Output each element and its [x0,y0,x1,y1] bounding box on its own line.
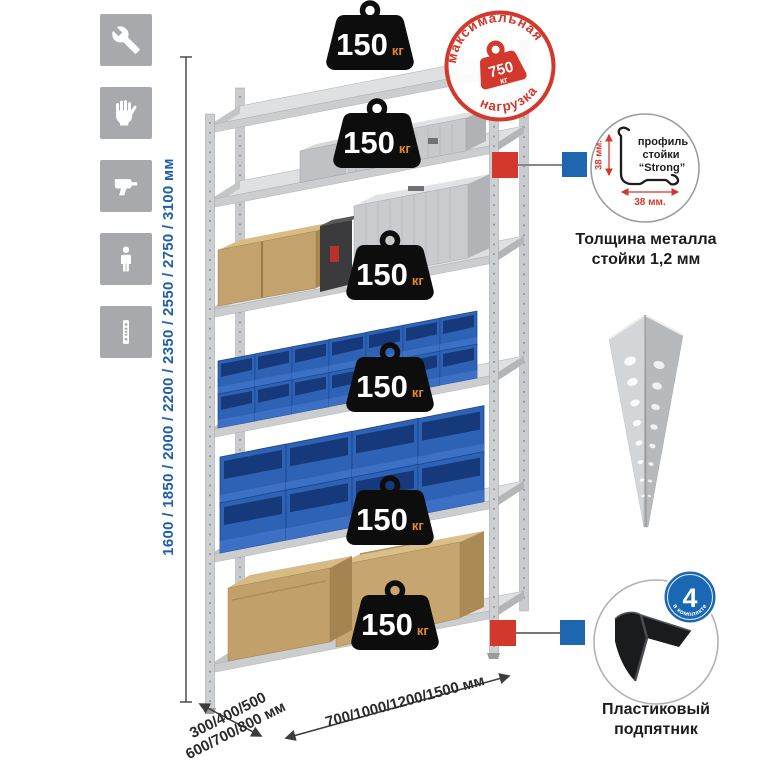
profile-caption: Толщина металла стойки 1,2 мм [565,230,727,270]
height-dimension-label: 1600 / 1850 / 2000 / 2200 / 2350 / 2550 … [159,72,179,642]
shelf-weight-badge-3: 150кг [317,230,463,302]
profile-caption-line2: стойки 1,2 мм [565,250,727,270]
weight-unit: кг [412,385,424,400]
profile-title-3: “Strong” [639,162,685,174]
icon-tile-wrench [100,14,152,66]
badge-count: 4 [682,583,697,613]
perforated-post-icon [111,317,141,347]
profile-caption-line1: Толщина металла [565,230,727,250]
profile-title-1: профиль [638,136,688,148]
person-icon [111,244,141,274]
shelf-weight-badge-6: 150кг [322,580,468,652]
foot-caption-line1: Пластиковый [575,700,737,720]
foot-caption-line2: подпятник [575,720,737,740]
profile-title-2: стойки [642,149,679,161]
weight-value: 150 [336,26,388,64]
icon-tile-drill [100,160,152,212]
profile-callout-connector [492,152,587,178]
icon-tile-post [100,306,152,358]
shelf-weight-badge-4: 150кг [317,342,463,414]
icon-tile-gloves [100,87,152,139]
shelf-weight-badge-1: 150кг [297,0,443,72]
weight-value: 150 [343,124,395,162]
height-dimension-line [180,57,192,702]
weight-value: 150 [356,368,408,406]
plastic-foot-detail: 4 в комплекте [591,569,723,709]
weight-value: 150 [356,256,408,294]
profile-width-dim: 38 мм. [634,197,666,208]
blue-marker-square [560,620,585,645]
foot-callout-connector [490,620,585,646]
weight-value: 150 [356,501,408,539]
weight-unit: кг [392,43,404,58]
weight-unit: кг [399,141,411,156]
weight-value: 150 [361,606,413,644]
red-marker-square [490,620,516,646]
icon-tile-person [100,233,152,285]
wrench-icon [111,25,141,55]
foot-caption: Пластиковый подпятник [575,700,737,740]
max-load-stamp: максимальная нагрузка 750 кг [442,8,558,124]
red-marker-square [492,152,518,178]
weight-unit: кг [417,623,429,638]
profile-height-dim: 38 мм. [594,140,605,170]
count-badge: 4 в комплекте [664,571,717,624]
weight-unit: кг [412,273,424,288]
weight-unit: кг [412,518,424,533]
post-profile-detail: 38 мм. 38 мм. профиль стойки “Strong” [589,112,701,224]
drill-icon [111,171,141,201]
gloves-icon [111,98,141,128]
shelf-weight-badge-5: 150кг [317,475,463,547]
shelf-weight-badge-2: 150кг [304,98,450,170]
steel-corner-post-image [597,303,693,538]
product-infographic: 1600 / 1850 / 2000 / 2200 / 2350 / 2550 … [0,0,765,765]
blue-marker-square [562,152,587,177]
